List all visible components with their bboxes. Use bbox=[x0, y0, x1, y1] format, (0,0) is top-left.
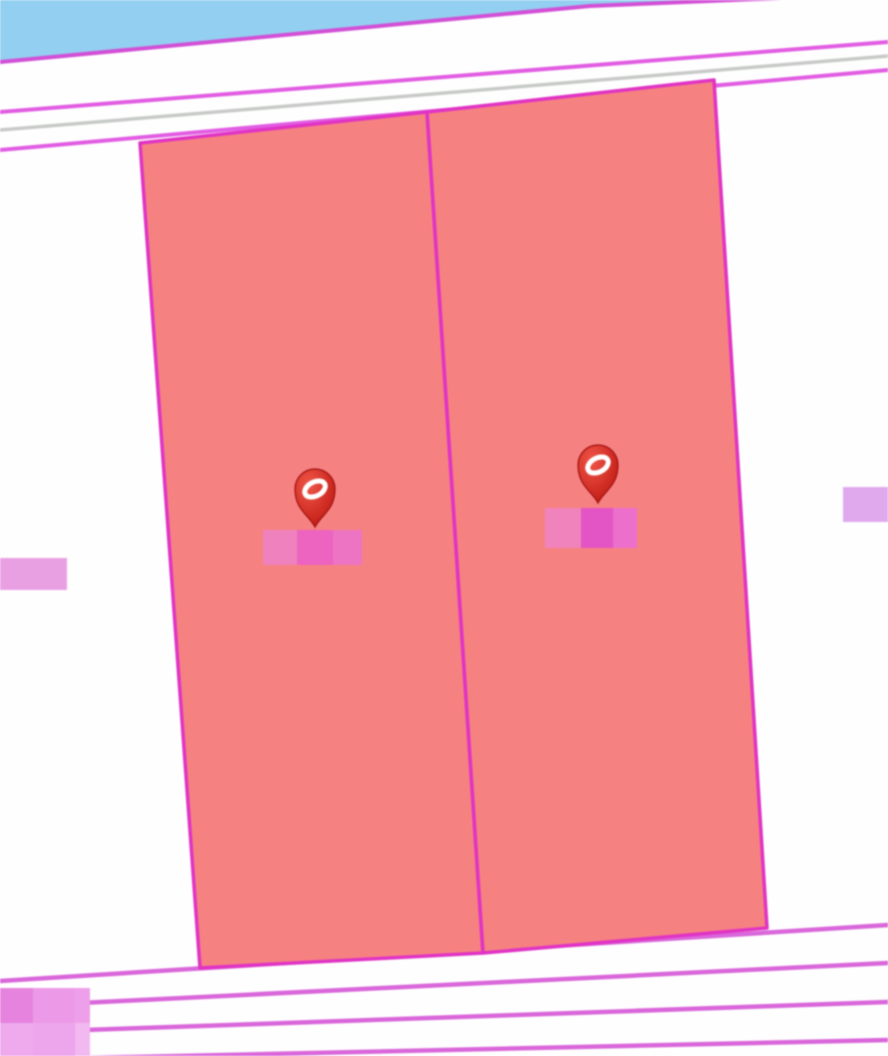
road-upper-edge-line bbox=[0, 42, 888, 112]
redacted-label-left-edge bbox=[0, 558, 67, 590]
lot-line-4 bbox=[0, 1040, 888, 1056]
redacted-label-east bbox=[545, 508, 637, 548]
redacted-label-bottom-left-cell bbox=[75, 988, 90, 1023]
redacted-label-bottom-left-cell bbox=[75, 1023, 90, 1056]
parcel-map[interactable] bbox=[0, 0, 888, 1056]
redacted-label-east-cell bbox=[545, 508, 581, 548]
redacted-label-west-cell bbox=[297, 530, 333, 565]
redacted-label-right-edge-cell bbox=[843, 487, 888, 522]
redacted-label-bottom-left-cell bbox=[33, 1023, 75, 1056]
redacted-label-left-edge-cell bbox=[0, 558, 67, 590]
redacted-label-bottom-left bbox=[0, 988, 90, 1056]
lot-line-3 bbox=[0, 1002, 888, 1033]
redacted-label-bottom-left-cell bbox=[0, 1023, 33, 1056]
redacted-label-right-edge bbox=[843, 487, 888, 522]
redacted-label-west bbox=[263, 530, 362, 565]
water-area bbox=[0, 0, 780, 64]
redacted-label-west-cell bbox=[263, 530, 297, 565]
redacted-label-east-cell bbox=[581, 508, 613, 548]
redacted-label-west-cell bbox=[333, 530, 362, 565]
redacted-label-bottom-left-cell bbox=[0, 988, 33, 1023]
redacted-label-bottom-left-cell bbox=[33, 988, 75, 1023]
redacted-label-east-cell bbox=[613, 508, 637, 548]
lot-line-2 bbox=[0, 963, 888, 1007]
map-canvas[interactable] bbox=[0, 0, 888, 1056]
